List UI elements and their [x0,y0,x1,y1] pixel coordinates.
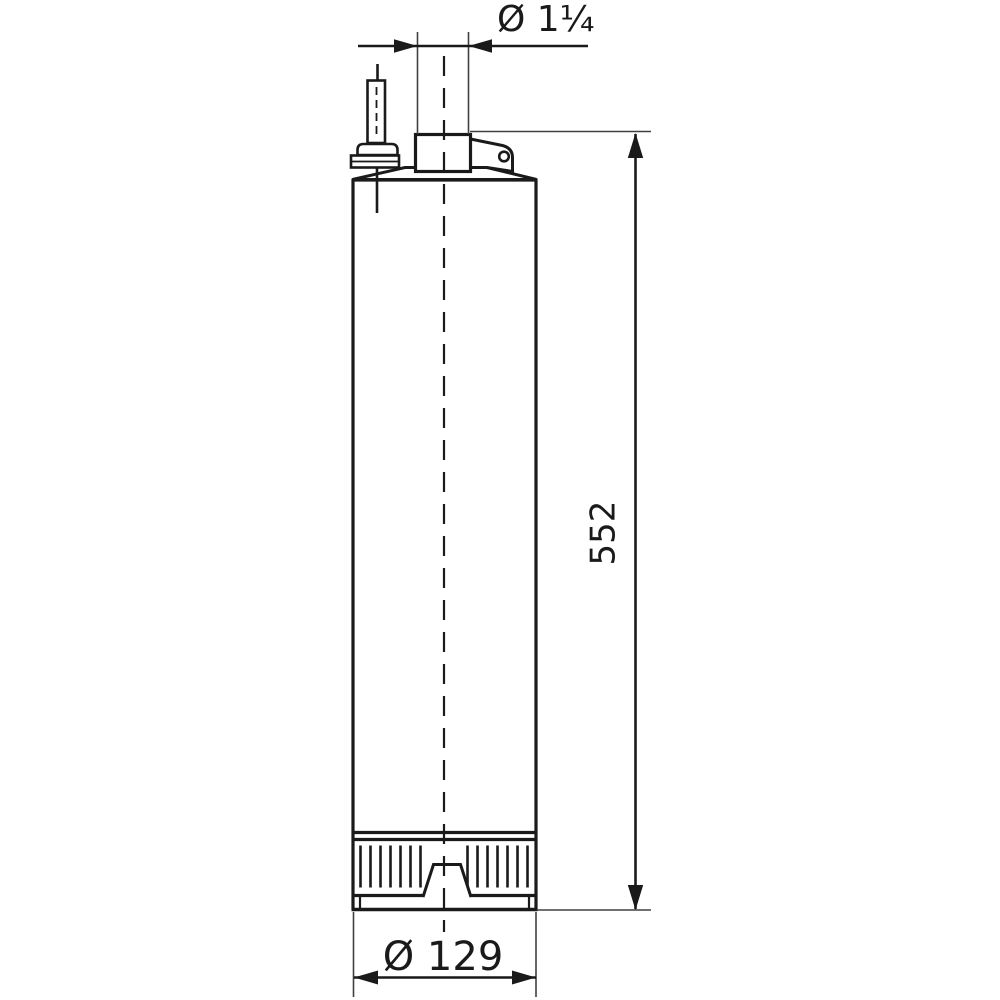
cable-gland [351,64,399,213]
overall-height-label: 552 [584,501,624,566]
arrow-right-icon [512,971,536,985]
arrow-up-icon [628,133,643,158]
lifting-lug [471,139,513,172]
body-diameter-label: Ø 129 [383,934,504,980]
arrow-left-icon [469,39,493,53]
pump-dimension-drawing: Ø 1¼ 552 Ø 129 [0,0,1000,1000]
outlet-diameter-label: Ø 1¼ [497,0,595,40]
dim-overall-height: 552 [470,132,651,911]
strainer-center-guide [423,865,471,898]
strainer-slots-left [361,846,421,888]
arrow-right-icon [394,39,418,53]
arrow-down-icon [628,885,643,910]
lifting-lug-hole [499,152,509,162]
gland-cap [358,144,398,155]
strainer-slots-right [468,846,528,888]
dim-outlet-diameter: Ø 1¼ [358,0,595,53]
drawing-canvas: Ø 1¼ 552 Ø 129 [0,0,1000,1000]
arrow-left-icon [354,971,378,985]
